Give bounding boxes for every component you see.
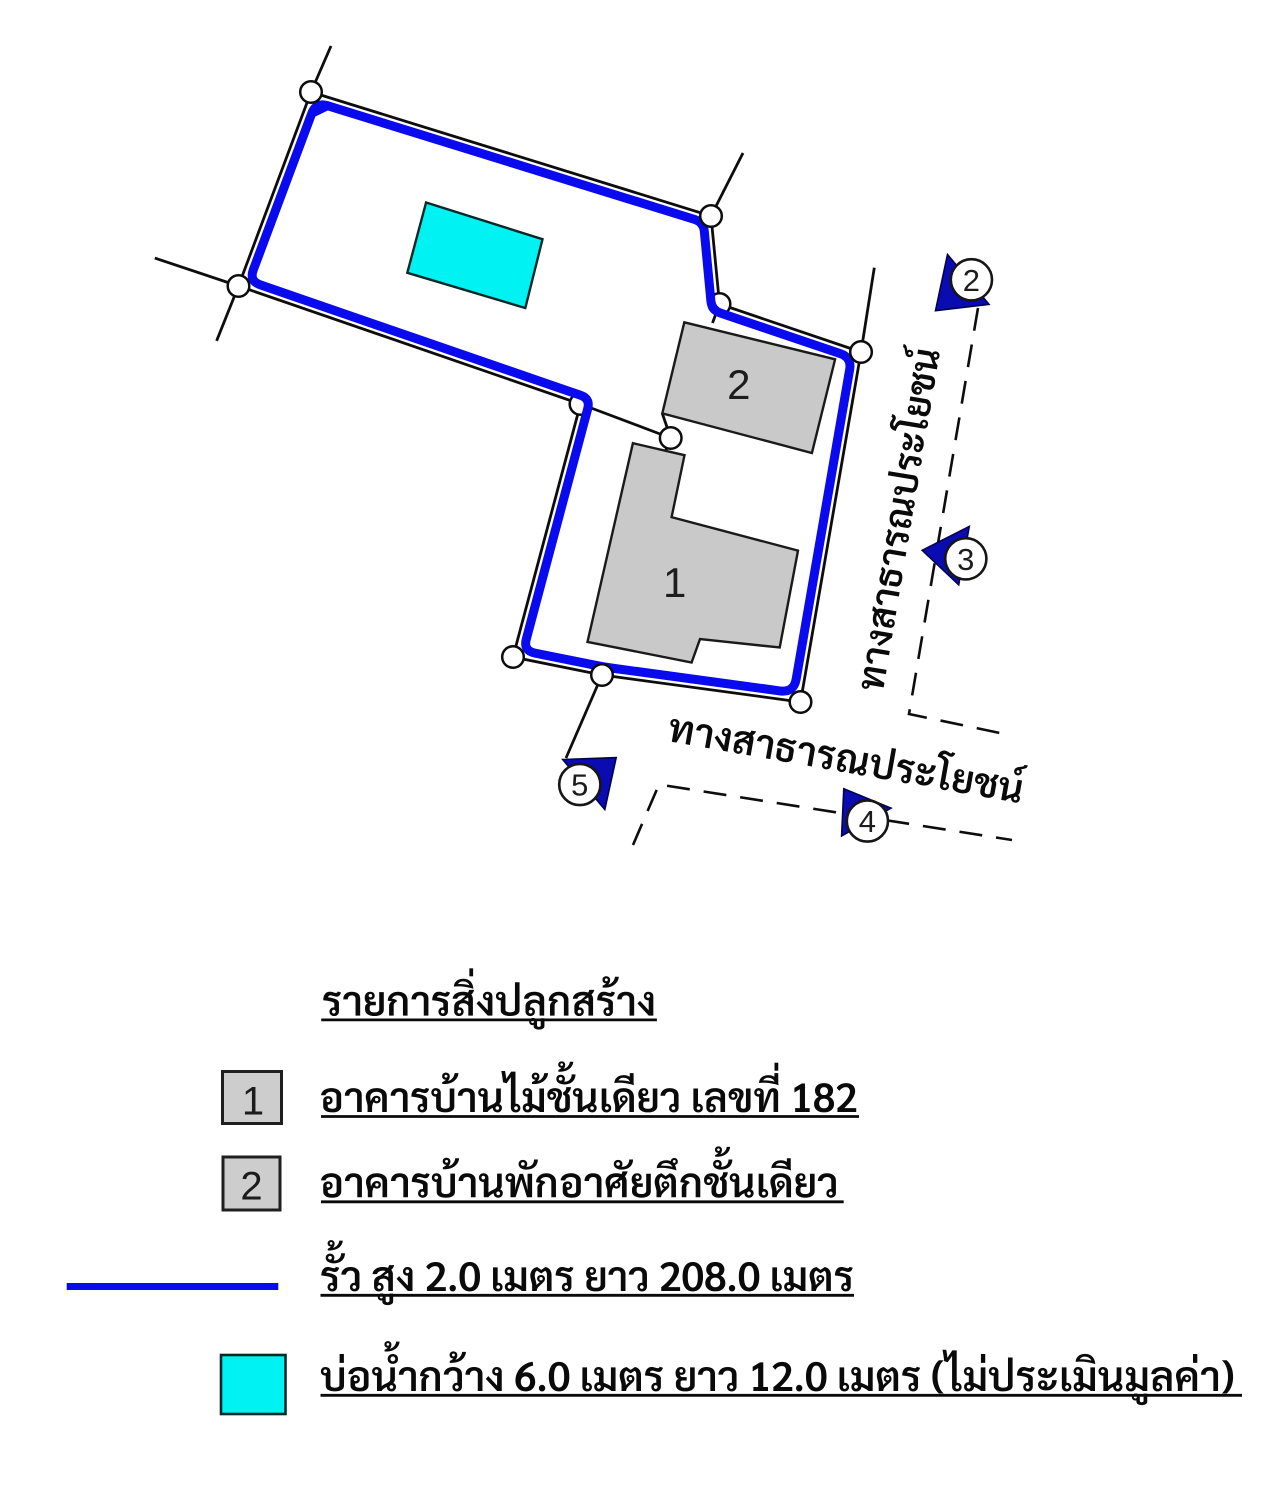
- svg-text:1: 1: [663, 559, 686, 606]
- svg-text:3: 3: [957, 542, 974, 577]
- svg-text:4: 4: [859, 804, 876, 839]
- svg-text:5: 5: [571, 768, 588, 803]
- svg-text:2: 2: [727, 361, 750, 408]
- svg-text:2: 2: [240, 1165, 262, 1209]
- svg-text:2: 2: [963, 263, 980, 298]
- svg-text:1: 1: [242, 1080, 264, 1124]
